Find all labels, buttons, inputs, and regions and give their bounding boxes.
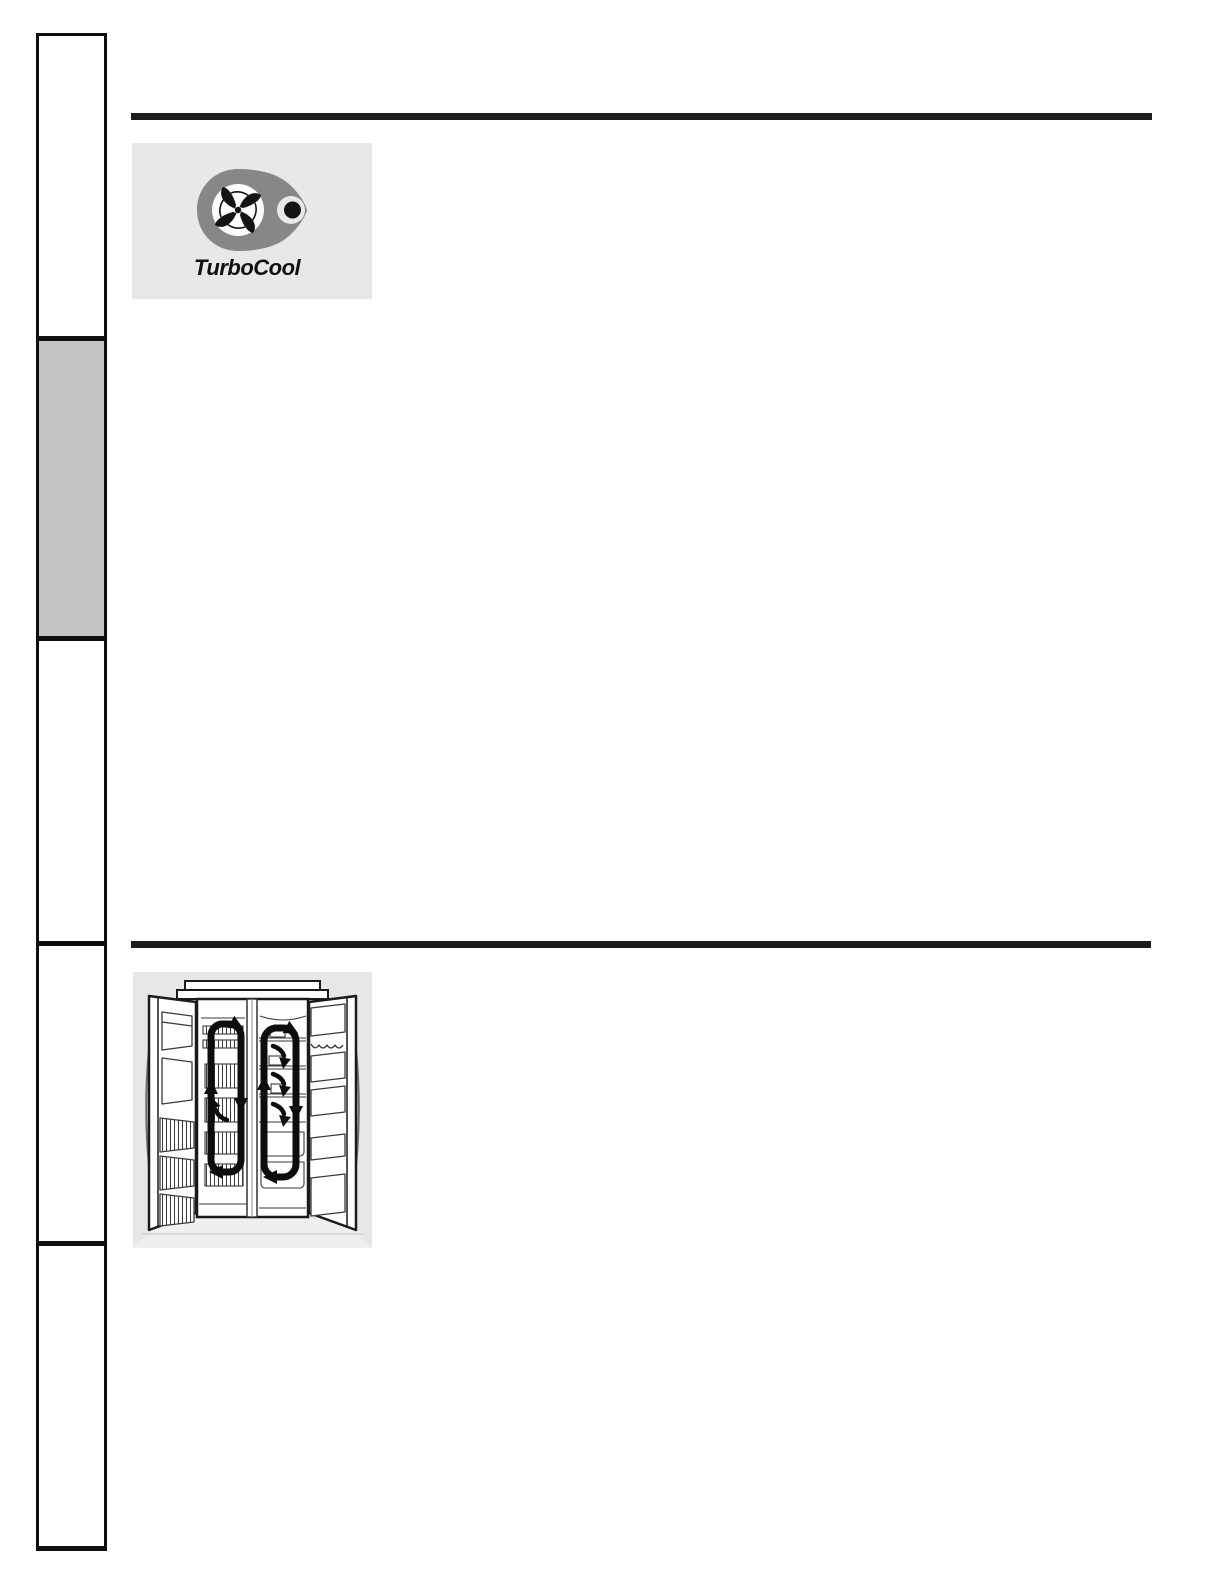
airflow-figure-panel <box>133 972 372 1248</box>
turbocool-wordmark: TurboCool <box>167 255 327 281</box>
manual-page: TurboCool <box>0 0 1224 1584</box>
middle-section-rule <box>131 941 1151 948</box>
section-tab-3 <box>36 638 107 944</box>
section-tab-2-active <box>36 336 107 641</box>
section-tab-1 <box>36 33 107 339</box>
section-tab-5 <box>36 1241 107 1551</box>
turbocool-fan-icon <box>190 165 312 257</box>
refrigerator-airflow-diagram <box>133 972 372 1248</box>
top-section-rule <box>131 113 1152 120</box>
section-tab-4 <box>36 941 107 1244</box>
turbocool-figure-panel: TurboCool <box>132 143 372 299</box>
